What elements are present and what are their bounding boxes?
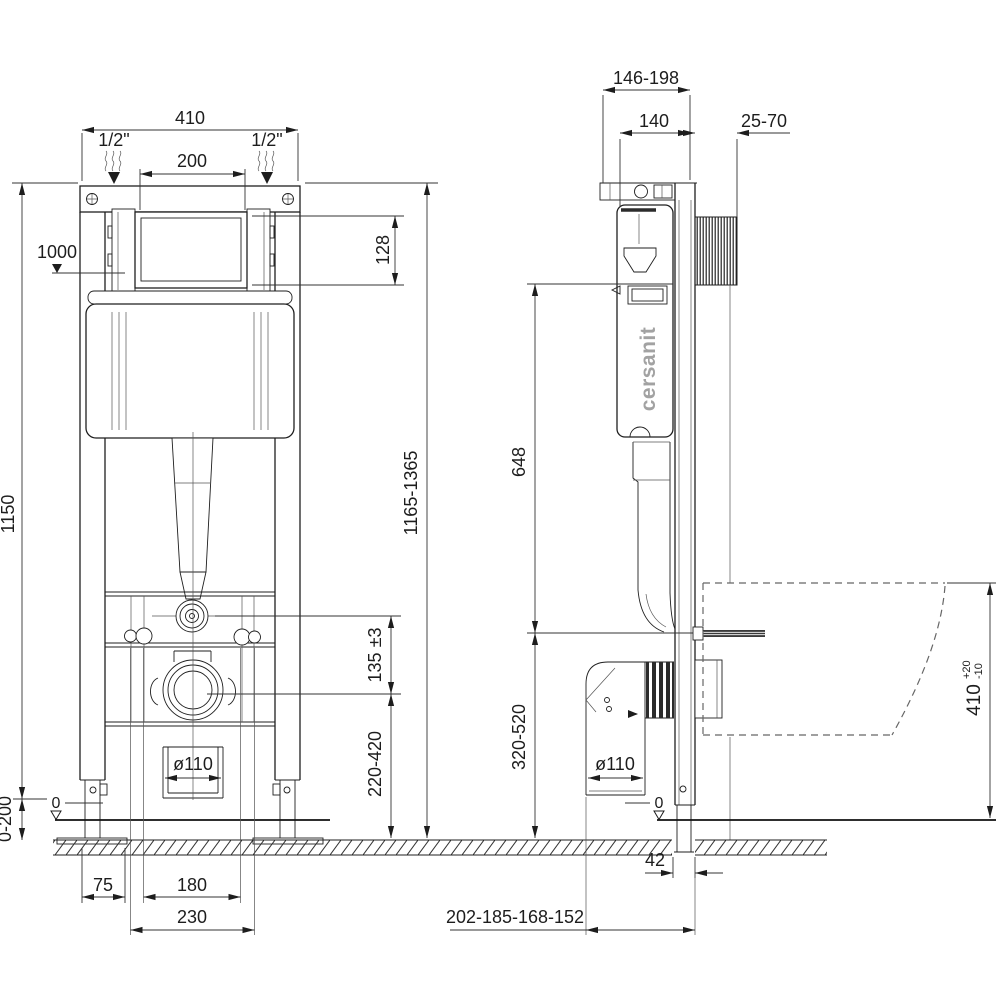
level-triangle-icon xyxy=(654,811,664,820)
dim-label-bowl-tol-minus: -10 xyxy=(973,663,985,679)
dim-label-depth-adjust: 146-198 xyxy=(613,68,679,88)
down-arrow-icon xyxy=(108,172,120,184)
water-flow-icon xyxy=(105,151,121,171)
dim-outlet-height-side: 320-520 xyxy=(509,633,535,838)
screw-icon xyxy=(283,194,294,205)
dim-label-flush-to-outlet: 135 ±3 xyxy=(365,628,385,683)
dim-label-outlet-height-front: 220-420 xyxy=(365,731,385,797)
bowl-fixing-rod xyxy=(527,627,765,640)
zero-level-front: 0 xyxy=(51,795,330,820)
front-cistern xyxy=(86,291,294,438)
front-flush-pipe xyxy=(172,438,213,599)
inlet-left-label: 1/2" xyxy=(98,130,129,150)
dim-floor-buildup: 0-200 xyxy=(0,796,22,842)
dim-wall-distance: 25-70 xyxy=(684,111,790,217)
dim-label-drain-wall-offsets: 202-185-168-152 xyxy=(446,907,584,927)
dim-label-frame-depth: 140 xyxy=(639,111,669,131)
dim-label-drain-dia-front: ø110 xyxy=(173,754,213,774)
dim-label-flush-opening-height: 128 xyxy=(373,235,393,265)
brand-logo: cersanit xyxy=(637,327,660,412)
dim-label-drain-dia-side: ø110 xyxy=(595,754,635,774)
side-cistern: cersanit xyxy=(612,205,673,437)
dim-outlet-height-front: 220-420 xyxy=(365,694,391,838)
ground-floor xyxy=(53,840,827,855)
installation-drawing: cersanit xyxy=(0,0,1000,1000)
dim-flush-opening-width: 200 xyxy=(140,151,245,210)
side-top-bracket xyxy=(600,183,697,200)
corrugated-coupling xyxy=(645,662,674,718)
dim-flush-to-outlet: 135 ±3 xyxy=(207,616,401,694)
wall-outlet-sleeve xyxy=(695,660,722,718)
dim-label-bowl-tol-plus: +20 xyxy=(961,660,973,679)
dim-label-frame-width: 410 xyxy=(175,108,205,128)
dim-label-supply-level: 1000 xyxy=(37,242,77,262)
side-view: cersanit xyxy=(527,183,945,852)
dim-label-fixing-inner: 180 xyxy=(177,875,207,895)
level-triangle-icon xyxy=(51,811,61,820)
down-arrow-icon xyxy=(261,172,273,184)
side-flush-pipe xyxy=(633,442,675,632)
dim-label-leg-wall-offset: 42 xyxy=(645,850,665,870)
wall-anchor-stud xyxy=(695,217,737,285)
dim-frame-depth: 140 xyxy=(620,111,690,207)
dim-label-floor-buildup: 0-200 xyxy=(0,796,15,842)
dim-label-frame-height: 1150 xyxy=(0,495,18,534)
dim-frame-height: 1150 xyxy=(0,183,78,799)
side-frame xyxy=(674,183,695,852)
dim-foot-offset: 75 xyxy=(82,848,125,903)
water-inlet-left: 1/2" xyxy=(98,130,129,184)
inlet-right-label: 1/2" xyxy=(251,130,282,150)
dim-label-installed-height: 1165-1365 xyxy=(401,451,421,536)
front-flush-plate-window xyxy=(108,209,274,292)
water-inlet-right: 1/2" xyxy=(251,130,282,184)
dim-bowl-height: 410 +20 -10 xyxy=(947,583,996,818)
dimensions-side: 146-198 140 25-70 648 320-520 ø110 xyxy=(446,68,996,935)
dim-label-outlet-height-side: 320-520 xyxy=(509,704,529,770)
toilet-bowl-outline xyxy=(703,583,945,735)
level-arrow-icon xyxy=(52,264,62,273)
zero-level-side: 0 xyxy=(625,795,996,820)
side-drain-elbow xyxy=(586,662,674,795)
zero-label-side: 0 xyxy=(655,795,664,812)
drawing-page: cersanit xyxy=(0,0,1000,1000)
zero-label-front: 0 xyxy=(52,795,61,812)
dim-label-foot-offset: 75 xyxy=(93,875,113,895)
screw-icon xyxy=(87,194,98,205)
dim-label-bowl-height: 410 xyxy=(964,684,985,716)
dim-label-wall-distance: 25-70 xyxy=(741,111,787,131)
dim-label-top-to-outlet: 648 xyxy=(509,447,529,477)
dim-label-flush-opening-width: 200 xyxy=(177,151,207,171)
dim-label-fixing-outer: 230 xyxy=(177,907,207,927)
dim-drain-diameter-side: ø110 xyxy=(588,754,643,778)
water-flow-icon xyxy=(258,151,274,171)
front-flush-elbow xyxy=(152,600,215,632)
